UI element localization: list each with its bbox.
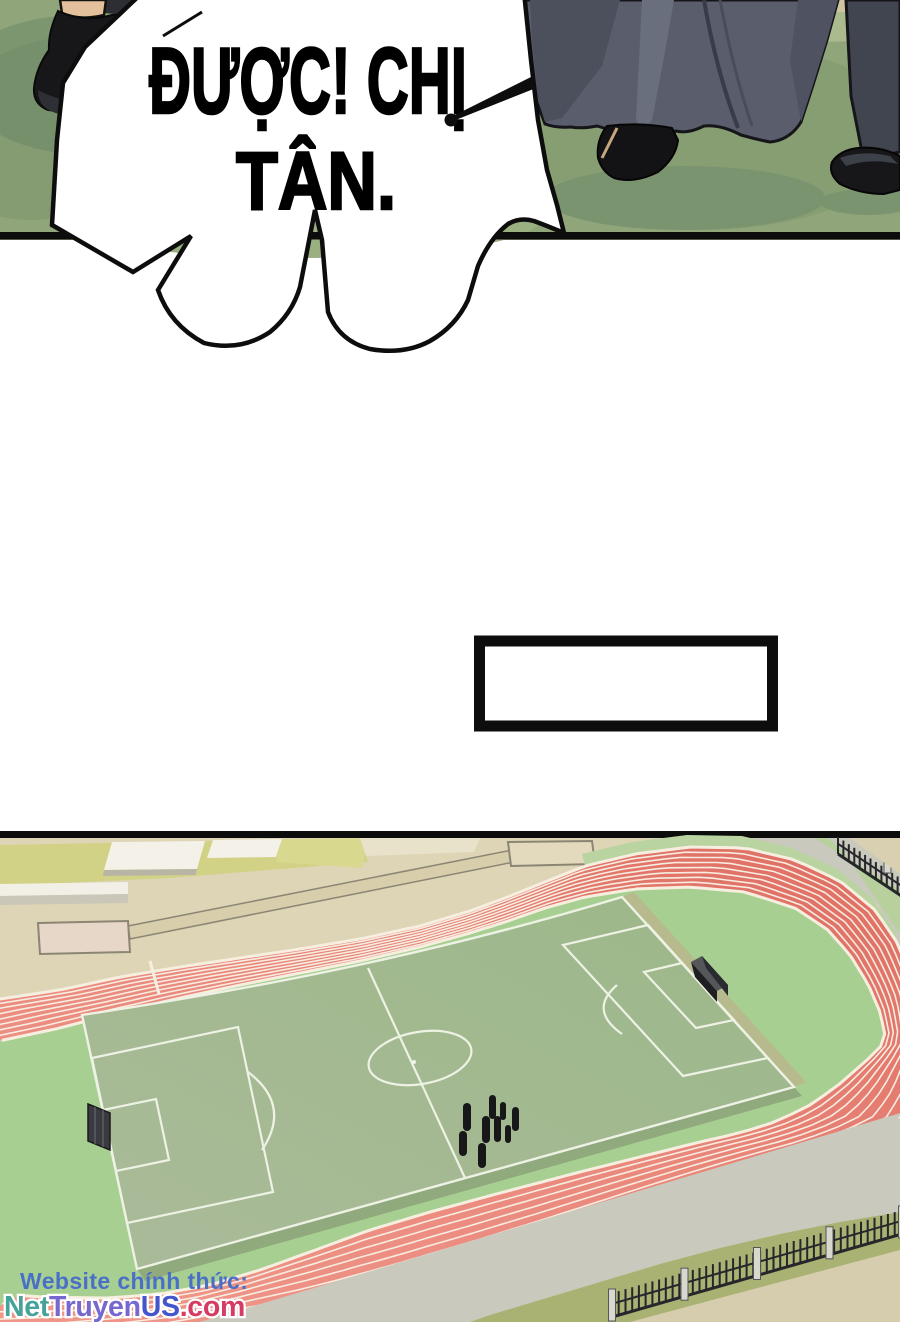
svg-text:ĐƯỢC! CHỊ: ĐƯỢC! CHỊ [149,28,467,133]
svg-text:NetTruyenUS.com: NetTruyenUS.com [4,1291,245,1322]
svg-text:TÂN.: TÂN. [236,136,396,227]
